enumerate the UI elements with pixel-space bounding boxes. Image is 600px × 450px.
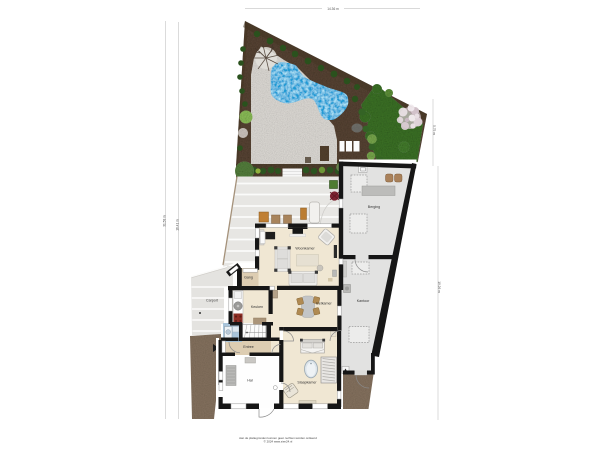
svg-text:Carport: Carport (206, 299, 218, 303)
svg-text:Berging: Berging (368, 205, 380, 209)
svg-text:14.36 m: 14.36 m (327, 7, 339, 11)
svg-text:Slaapkamer: Slaapkamer (297, 381, 317, 385)
svg-text:19.26 m: 19.26 m (437, 281, 441, 293)
svg-text:Entree: Entree (243, 345, 254, 349)
svg-text:Eetkamer: Eetkamer (316, 302, 332, 306)
svg-text:16.41 m: 16.41 m (176, 219, 180, 231)
svg-text:Hal: Hal (247, 379, 253, 383)
svg-text:Woonkamer: Woonkamer (295, 247, 315, 251)
svg-text:Gang: Gang (244, 276, 253, 280)
svg-text:31.58 m: 31.58 m (163, 215, 167, 227)
svg-text:Kantoor: Kantoor (357, 299, 370, 303)
svg-text:5.75 m: 5.75 m (432, 125, 436, 135)
svg-text:Keuken: Keuken (251, 305, 263, 309)
svg-text:© 2024 www.zien24.nl: © 2024 www.zien24.nl (264, 439, 293, 443)
